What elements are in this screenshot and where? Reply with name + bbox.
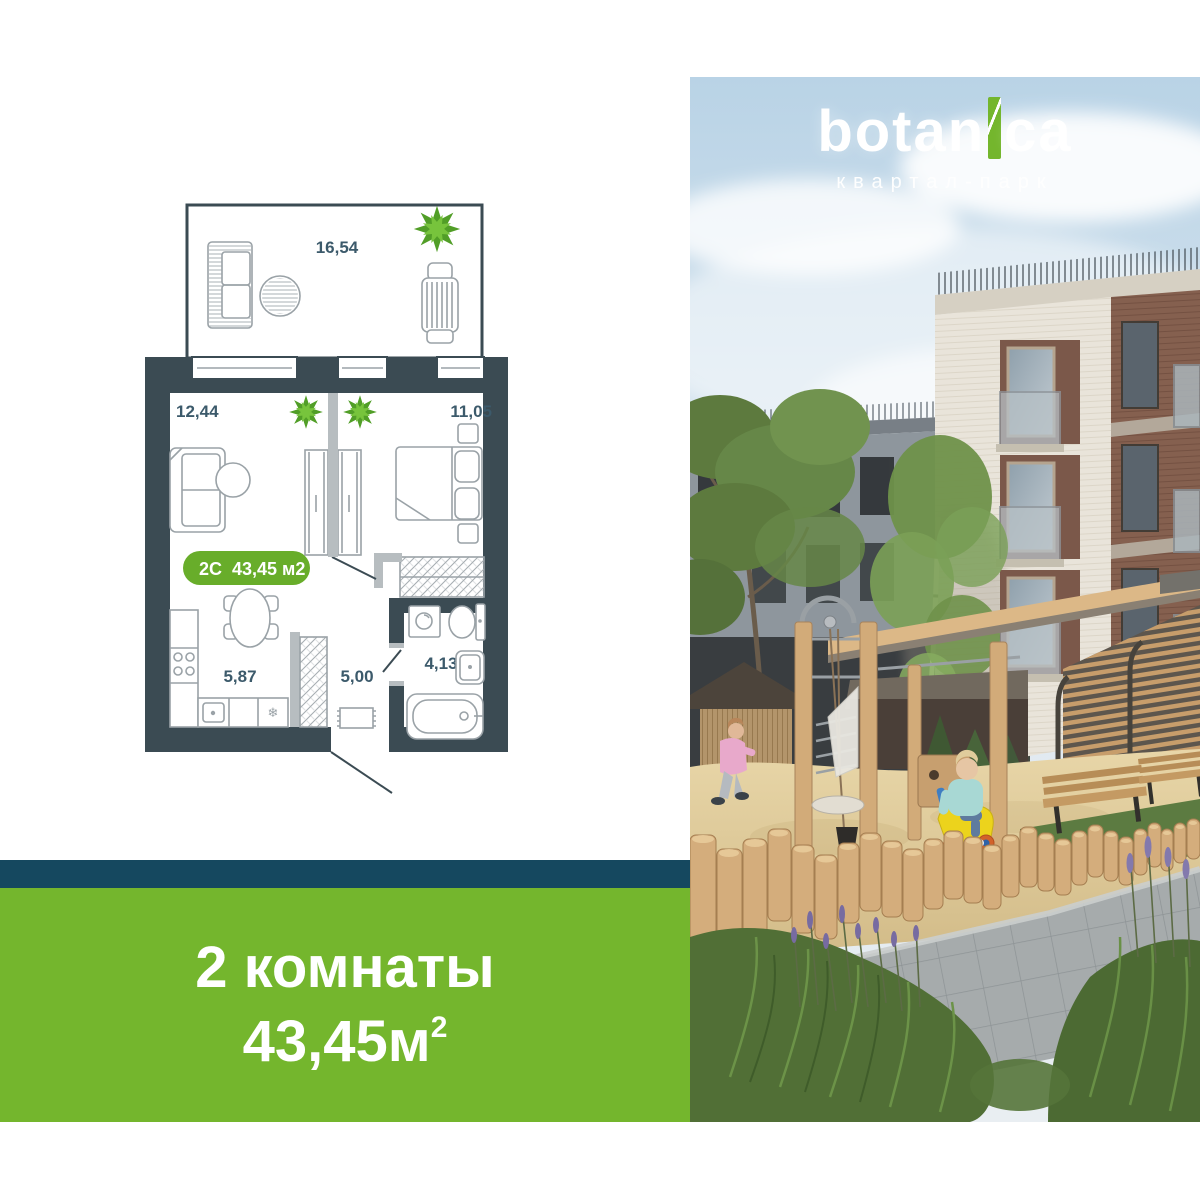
rooms-count-text: 2 комнаты xyxy=(195,936,494,1000)
lounger xyxy=(422,263,458,343)
bathtub xyxy=(407,694,483,739)
brand-tagline: квартал-парк xyxy=(690,171,1200,194)
living-area-label: 12,44 xyxy=(176,402,219,421)
terrace-area-label: 16,54 xyxy=(316,238,359,257)
nightstand xyxy=(458,424,478,443)
sofa-terrace xyxy=(208,242,252,328)
info-banner: 2 комнаты 43,45м2 xyxy=(0,860,690,1122)
plant-icon xyxy=(343,395,377,429)
closet-hall xyxy=(300,637,327,727)
rug xyxy=(337,708,376,728)
round-table-hatch xyxy=(262,278,298,314)
total-area-text: 43,45м2 xyxy=(243,1010,448,1074)
bedroom-area-label: 11,05 xyxy=(450,402,492,421)
bathroom-door-swing xyxy=(383,650,401,672)
fridge-icon: ❄ xyxy=(268,706,279,721)
kitchen-area-label: 5,87 xyxy=(223,667,256,686)
brand-leaf-i-icon: i xyxy=(988,97,1001,159)
window-balcony-unit xyxy=(996,455,1080,567)
area-superscript: 2 xyxy=(431,1011,448,1044)
grass-tuft xyxy=(970,1059,1070,1111)
badge-room-code: 2С xyxy=(199,559,222,579)
area-value: 43,45 xyxy=(243,1009,388,1074)
floor-plan: 16,54 12,44 xyxy=(140,198,512,798)
room-terrace: 16,54 xyxy=(187,205,482,358)
brand-right: ca xyxy=(1004,99,1073,164)
banner-navy-strip xyxy=(0,860,690,888)
courtyard-photo: botanica квартал-парк xyxy=(690,77,1200,1122)
washing-machine xyxy=(409,606,440,637)
window-balcony-unit xyxy=(996,340,1080,452)
bed xyxy=(396,447,482,520)
room-living: 12,44 xyxy=(170,395,377,555)
brand-logo: botanica квартал-парк xyxy=(690,97,1200,194)
plant-icon xyxy=(289,395,323,429)
closet-bedroom xyxy=(400,557,484,597)
bedroom-door-swing xyxy=(332,557,376,579)
sink xyxy=(456,651,484,684)
promo-card: 16,54 12,44 xyxy=(0,0,1200,1200)
windows xyxy=(192,357,484,379)
bathroom-area-label: 4,13 xyxy=(424,654,457,673)
area-unit: м xyxy=(388,1009,431,1074)
rug-round xyxy=(216,463,250,497)
sofa-living xyxy=(170,448,225,532)
toilet xyxy=(449,604,485,640)
door-jamb xyxy=(389,681,404,686)
door-jamb xyxy=(374,553,402,588)
nightstand xyxy=(458,524,478,543)
divider-strip xyxy=(290,632,300,727)
divider-strip xyxy=(328,393,338,557)
brand-left: botan xyxy=(817,99,985,164)
banner-green-block: 2 комнаты 43,45м2 xyxy=(0,888,690,1122)
entry-door-swing xyxy=(331,752,392,793)
brand-wordmark: botanica xyxy=(690,97,1200,161)
room-hall: 5,00 xyxy=(300,637,392,793)
courtyard-scene xyxy=(690,77,1200,1122)
play-table xyxy=(812,796,864,814)
dining-set xyxy=(224,589,278,647)
plant-icon xyxy=(414,206,460,252)
door-jamb xyxy=(389,643,404,648)
hall-area-label: 5,00 xyxy=(340,667,373,686)
area-badge: 2С 43,45 м2 xyxy=(183,551,310,585)
badge-area: 43,45 м2 xyxy=(232,559,305,579)
